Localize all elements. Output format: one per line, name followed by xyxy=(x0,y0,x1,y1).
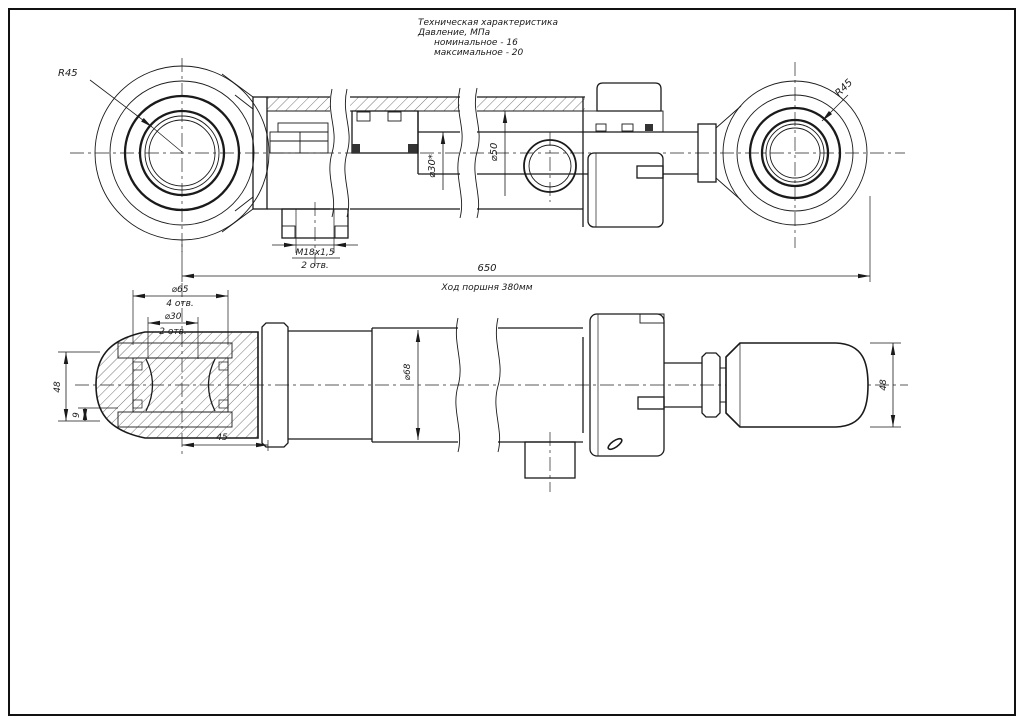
port-qty-label: 2 отв. xyxy=(301,261,329,271)
eye-width-left-label: 48 xyxy=(53,381,63,393)
cap-end-internals xyxy=(270,123,328,153)
stroke-note-label: Ход поршня 380мм xyxy=(440,283,532,293)
tech-spec-maximum: максимальное - 20 xyxy=(434,48,524,58)
gland-nut-top-view xyxy=(588,153,663,227)
tech-spec-nominal: номинальное - 16 xyxy=(434,38,518,48)
rod-dia-label: ⌀30* xyxy=(427,154,438,178)
eye-width-right-label: 48 xyxy=(879,379,889,391)
radius-left-label: R45 xyxy=(58,68,78,79)
offset-label: 9 xyxy=(72,412,82,418)
eye-bore-label: ⌀65 xyxy=(172,285,189,295)
tech-spec-title: Техническая характеристика xyxy=(418,18,558,28)
gland-nut-slot-bottom xyxy=(638,397,664,409)
bore-dia-label: ⌀50 xyxy=(489,143,500,162)
port-thread-dim: М18х1,5 2 отв. xyxy=(272,238,358,271)
bottom-view: ⌀65 4 отв. ⌀30 2 отв. ⌀68 48 9 xyxy=(53,283,908,492)
weep-hole-mark xyxy=(607,437,624,451)
gland-nut-slot xyxy=(637,166,663,178)
bore-dia-dim: ⌀50 xyxy=(489,111,505,196)
pin-bore-label: ⌀30 xyxy=(165,312,182,322)
tech-spec-pressure: Давление, МПа xyxy=(417,28,490,38)
gland-head-section xyxy=(583,83,663,132)
port-thread-label: М18х1,5 xyxy=(296,248,335,258)
radius-dim-left: R45 xyxy=(58,68,182,152)
overall-length-dim: 650 Ход поршня 380мм xyxy=(182,196,870,293)
overall-length-label: 650 xyxy=(477,263,496,274)
radius-right-label: R45 xyxy=(833,77,855,99)
tech-spec-block: Техническая характеристика Давление, МПа… xyxy=(417,18,558,58)
piston-assembly xyxy=(352,111,418,174)
drawing-sheet: Техническая характеристика Давление, МПа… xyxy=(0,0,1024,724)
eye-bore-qty: 4 отв. xyxy=(166,299,194,309)
rod-dia-dim: ⌀30* xyxy=(427,132,443,190)
eye-length-label: 45 xyxy=(216,433,228,443)
pin-bore-qty: 2 отв. xyxy=(159,327,187,337)
technical-drawing-svg: Техническая характеристика Давление, МПа… xyxy=(0,0,1024,724)
eye-width-right-dim: 48 xyxy=(870,343,901,427)
top-view-section: R45 R45 ⌀30* ⌀50 М18х1,5 2 отв. xyxy=(58,58,905,293)
eye-section xyxy=(96,332,258,438)
eye-width-left-dim: 48 xyxy=(53,352,100,421)
barrel-dia-label: ⌀68 xyxy=(403,363,413,380)
